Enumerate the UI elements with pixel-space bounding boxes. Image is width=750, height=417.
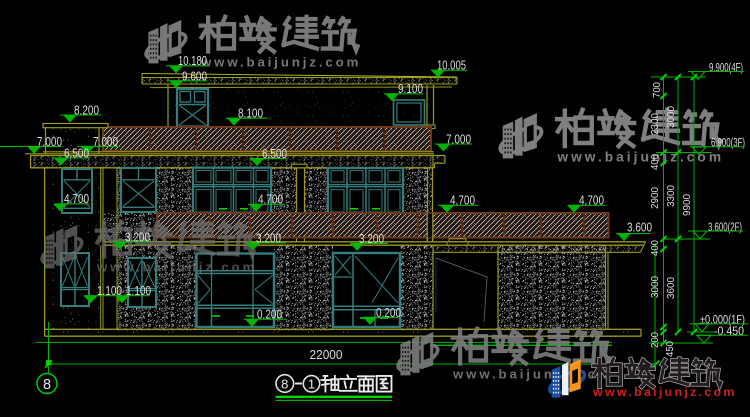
svg-text:700: 700 <box>652 82 663 98</box>
svg-text:8.200: 8.200 <box>74 104 99 118</box>
svg-text:3.600: 3.600 <box>627 221 652 235</box>
svg-text:6.900(3F): 6.900(3F) <box>711 138 745 150</box>
svg-text:6.500: 6.500 <box>64 147 89 161</box>
svg-text:www.baijunjz.com: www.baijunjz.com <box>200 55 361 70</box>
svg-text:22000: 22000 <box>310 348 343 362</box>
svg-text:www.baijunjz.com: www.baijunjz.com <box>96 260 257 275</box>
svg-text:-0.450: -0.450 <box>714 326 744 338</box>
svg-text:3.600(2F): 3.600(2F) <box>708 222 742 234</box>
svg-text:400: 400 <box>650 240 661 256</box>
svg-text:9.900(4F): 9.900(4F) <box>709 63 743 75</box>
svg-text:6.500: 6.500 <box>262 147 287 161</box>
svg-text:450: 450 <box>665 341 676 357</box>
svg-text:8: 8 <box>281 377 288 392</box>
svg-text:0.200: 0.200 <box>376 306 401 320</box>
svg-text:2900: 2900 <box>650 187 661 209</box>
svg-text:3000: 3000 <box>666 106 677 128</box>
svg-text:3300: 3300 <box>666 185 677 207</box>
svg-text:400: 400 <box>650 154 661 170</box>
svg-text:1: 1 <box>308 377 315 392</box>
svg-text:200: 200 <box>650 332 661 348</box>
svg-text:±0.000(1F): ±0.000(1F) <box>700 315 745 327</box>
svg-text:9.600: 9.600 <box>182 70 207 84</box>
svg-text:8: 8 <box>43 377 51 393</box>
svg-text:www.baijunjz.com: www.baijunjz.com <box>452 367 613 382</box>
svg-text:3600: 3600 <box>666 277 677 299</box>
svg-text:www.baijunjz.com: www.baijunjz.com <box>556 150 724 165</box>
svg-text:9900: 9900 <box>682 194 693 216</box>
svg-text:2300: 2300 <box>650 113 661 135</box>
svg-text:3000: 3000 <box>650 276 661 298</box>
svg-text:www.baijunjz.com: www.baijunjz.com <box>592 385 737 399</box>
